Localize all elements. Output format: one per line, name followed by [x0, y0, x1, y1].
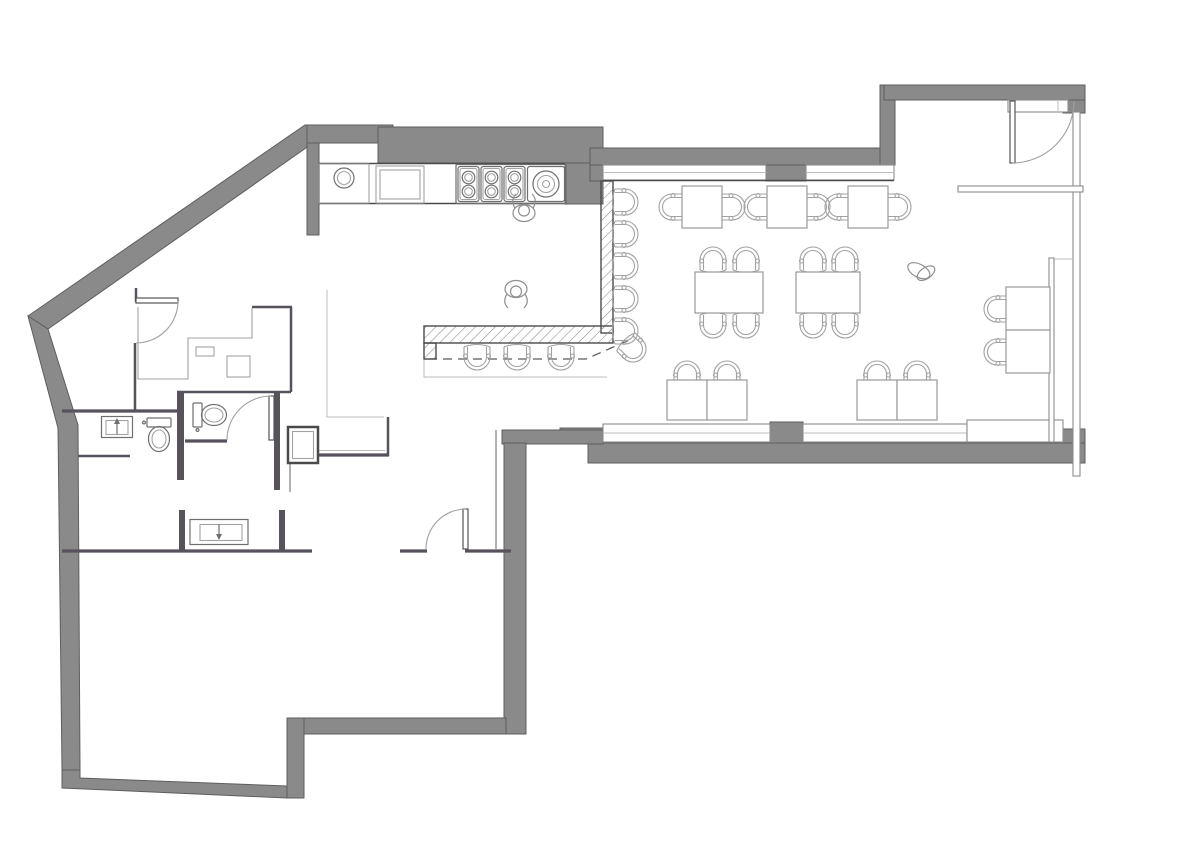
- bar-counter-foot: [424, 343, 436, 359]
- bar-stool: [504, 345, 531, 371]
- wall-entry-top: [884, 85, 1085, 100]
- dining-table: [682, 186, 722, 228]
- door-corridor: [426, 509, 468, 549]
- cooktop-large-burner: [528, 167, 565, 202]
- sink-small: [102, 417, 133, 438]
- floor-plan-page: [0, 0, 1191, 842]
- dining-chair: [659, 194, 685, 221]
- bar-counter-vertical-arm: [601, 181, 613, 333]
- pier-top-left: [590, 165, 603, 181]
- sink-wide: [190, 520, 248, 545]
- door-office: [136, 298, 178, 343]
- dining-table: [767, 186, 807, 228]
- toilet: [193, 403, 227, 431]
- dining-chair: [805, 194, 831, 221]
- wall-dining-top: [590, 148, 894, 165]
- back-office-desk: [138, 307, 252, 379]
- bar-stool: [613, 221, 639, 248]
- wall-center-vertical: [504, 443, 526, 734]
- chef: [505, 281, 528, 309]
- interior-walls: [62, 181, 894, 552]
- entry-threshold: [1008, 100, 1068, 112]
- vestibule-sill: [958, 186, 1083, 192]
- dining-chair: [825, 194, 851, 221]
- dining-chair: [800, 247, 827, 273]
- dining-chair: [700, 247, 727, 273]
- bar-stool: [613, 189, 639, 216]
- plant: [905, 259, 937, 283]
- cooktop: [456, 165, 566, 204]
- bar-stool: [613, 286, 639, 313]
- dining-table: [667, 380, 707, 420]
- toilet: [143, 418, 171, 452]
- kitchen-sink-counter: [319, 164, 369, 203]
- dining-chair: [720, 194, 746, 221]
- dining-chair: [744, 194, 770, 221]
- wall-junction-band: [502, 430, 603, 444]
- wall-lower-step-vertical: [287, 718, 304, 798]
- dining-table: [796, 272, 860, 313]
- floor-plan-drawing: [0, 0, 1191, 842]
- dining-chair: [733, 313, 760, 339]
- wall-lower-step-horizontal: [287, 718, 506, 734]
- wall-dining-bottom: [588, 443, 1085, 463]
- bar-stool: [615, 331, 652, 368]
- pier-top-mid: [766, 165, 806, 181]
- dining-table: [848, 186, 888, 228]
- dining-chair: [832, 247, 859, 273]
- dining-table: [695, 272, 763, 313]
- window-right: [1073, 112, 1080, 476]
- wall-kitchen-top: [378, 127, 603, 163]
- dining-table: [897, 380, 937, 420]
- dining-table: [707, 380, 747, 420]
- kitchen-cabinet: [376, 166, 424, 203]
- dining-chair: [886, 194, 912, 221]
- pier-bottom-mid: [770, 422, 803, 443]
- door-restroom: [227, 396, 274, 440]
- wall-bottom-left: [62, 768, 287, 798]
- bar-stool: [613, 318, 639, 345]
- dining-table: [857, 380, 897, 420]
- dining-chair: [832, 313, 859, 339]
- dining-table: [1006, 287, 1050, 330]
- bar-stool: [613, 253, 639, 280]
- wall-left: [28, 316, 80, 770]
- furniture-layer: [102, 186, 1051, 545]
- dining-chair: [733, 247, 760, 273]
- bar-stool: [548, 345, 575, 371]
- dining-table: [1006, 330, 1050, 373]
- dining-chair: [800, 313, 827, 339]
- dining-chair: [700, 313, 727, 339]
- bar-stool: [464, 345, 491, 371]
- bar-counter-horizontal-arm: [424, 326, 613, 343]
